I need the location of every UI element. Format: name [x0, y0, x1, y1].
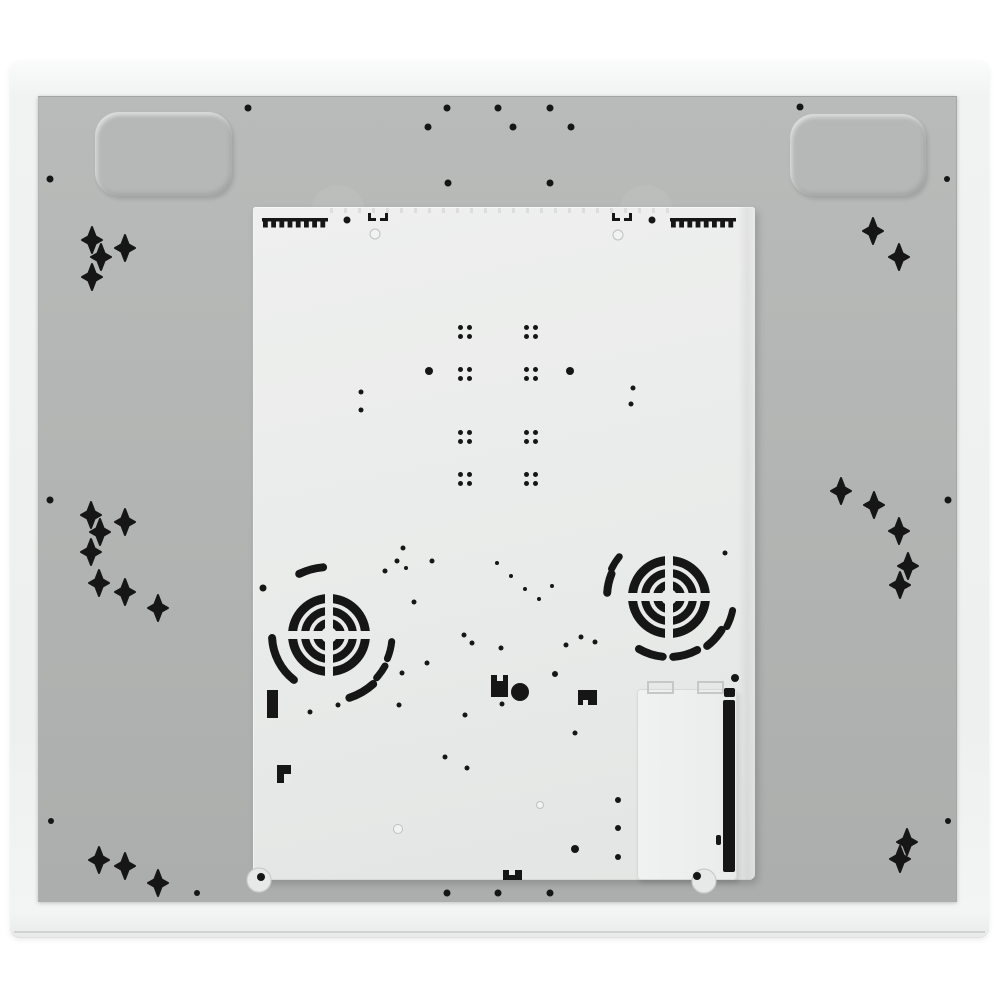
panel-serration [330, 208, 675, 213]
panel-edge-shade [738, 207, 755, 880]
embossed-pad-left [95, 112, 232, 196]
embossed-pad-right [790, 114, 926, 196]
stage: { "colors": { "page_bg": "#ffffff", "bla… [0, 0, 1000, 1000]
frame-bottom-line [14, 931, 985, 933]
terminal-box [637, 689, 737, 880]
